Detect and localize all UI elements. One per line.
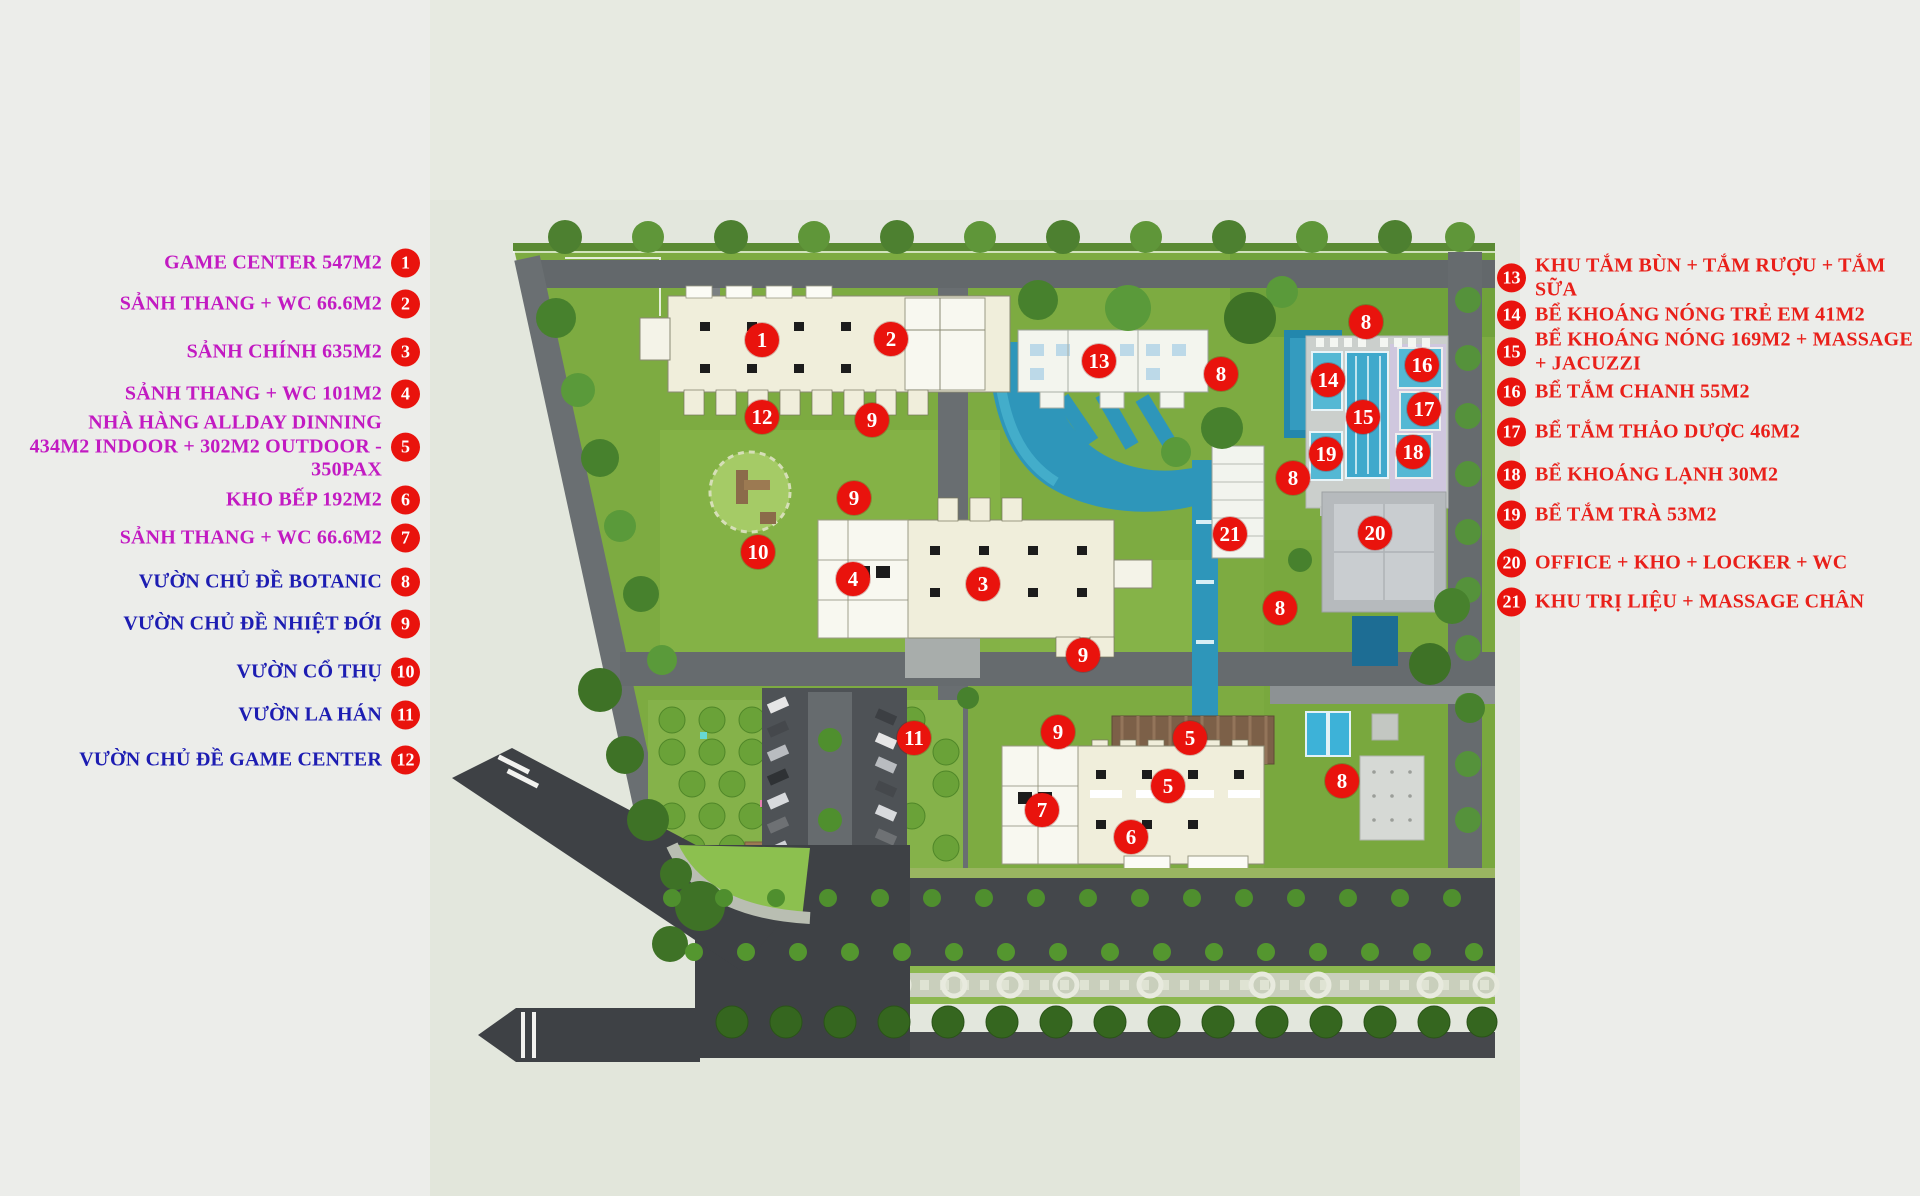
legend-label: VƯỜN CHỦ ĐỀ BOTANIC <box>139 570 382 594</box>
legend-number-badge: 16 <box>1497 378 1526 407</box>
map-marker-3: 3 <box>966 567 1000 601</box>
legend-number-badge: 14 <box>1497 301 1526 330</box>
map-marker-5: 5 <box>1173 721 1207 755</box>
legend-item-15: 15BỂ KHOÁNG NÓNG 169M2 + MASSAGE + JACUZ… <box>1497 328 1920 375</box>
map-marker-9: 9 <box>1066 638 1100 672</box>
legend-label: KHO BẾP 192M2 <box>226 488 382 512</box>
legend-item-20: 20OFFICE + KHO + LOCKER + WC <box>1497 549 1847 578</box>
legend-number-badge: 3 <box>391 338 420 367</box>
legend-item-13: 13KHU TẮM BÙN + TẮM RƯỢU + TẮM SỮA <box>1497 254 1920 301</box>
map-marker-6: 6 <box>1114 820 1148 854</box>
playground-garden-10 <box>710 452 790 532</box>
legend-item-18: 18BỂ KHOÁNG LẠNH 30M2 <box>1497 461 1778 490</box>
map-marker-20: 20 <box>1358 516 1392 550</box>
legend-number-badge: 11 <box>391 701 420 730</box>
map-marker-9: 9 <box>1041 715 1075 749</box>
map-marker-2: 2 <box>874 322 908 356</box>
legend-item-6: KHO BẾP 192M26 <box>226 486 420 515</box>
legend-label: VƯỜN CHỦ ĐỀ GAME CENTER <box>79 748 382 772</box>
map-marker-8: 8 <box>1204 357 1238 391</box>
legend-label: KHU TRỊ LIỆU + MASSAGE CHÂN <box>1535 590 1864 614</box>
legend-item-12: VƯỜN CHỦ ĐỀ GAME CENTER12 <box>79 746 420 775</box>
legend-label: BỂ TẮM TRÀ 53M2 <box>1535 503 1717 527</box>
map-marker-8: 8 <box>1263 591 1297 625</box>
legend-item-8: VƯỜN CHỦ ĐỀ BOTANIC8 <box>139 568 420 597</box>
legend-label: NHÀ HÀNG ALLDAY DINNING 434M2 INDOOR + 3… <box>0 412 382 483</box>
map-marker-8: 8 <box>1325 764 1359 798</box>
legend-item-5: NHÀ HÀNG ALLDAY DINNING 434M2 INDOOR + 3… <box>0 412 420 483</box>
legend-item-10: VƯỜN CỔ THỤ10 <box>236 658 420 687</box>
legend-number-badge: 15 <box>1497 338 1526 367</box>
legend-label: BỂ TẮM THẢO DƯỢC 46M2 <box>1535 420 1800 444</box>
legend-number-badge: 7 <box>391 524 420 553</box>
legend-label: VƯỜN LA HÁN <box>238 703 382 727</box>
map-marker-7: 7 <box>1025 793 1059 827</box>
legend-label: GAME CENTER 547M2 <box>164 251 382 275</box>
map-marker-5: 5 <box>1151 769 1185 803</box>
legend-item-11: VƯỜN LA HÁN11 <box>238 701 420 730</box>
map-marker-12: 12 <box>745 400 779 434</box>
legend-number-badge: 1 <box>391 249 420 278</box>
legend-number-badge: 19 <box>1497 501 1526 530</box>
map-marker-18: 18 <box>1396 435 1430 469</box>
map-marker-9: 9 <box>855 403 889 437</box>
legend-label: BỂ KHOÁNG NÓNG TRẺ EM 41M2 <box>1535 303 1865 327</box>
legend-number-badge: 5 <box>391 433 420 462</box>
site-plan-page: GAME CENTER 547M21 SẢNH THANG + WC 66.6M… <box>0 0 1920 1196</box>
legend-number-badge: 9 <box>391 610 420 639</box>
map-marker-16: 16 <box>1405 348 1439 382</box>
map-marker-17: 17 <box>1407 392 1441 426</box>
legend-item-16: 16BỂ TẮM CHANH 55M2 <box>1497 378 1750 407</box>
map-marker-13: 13 <box>1082 344 1116 378</box>
map-marker-8: 8 <box>1276 461 1310 495</box>
legend-label: VƯỜN CỔ THỤ <box>236 660 382 684</box>
legend-number-badge: 17 <box>1497 418 1526 447</box>
map-marker-9: 9 <box>837 481 871 515</box>
legend-item-7: SẢNH THANG + WC 66.6M27 <box>120 524 420 553</box>
map-marker-11: 11 <box>897 721 931 755</box>
map-marker-1: 1 <box>745 323 779 357</box>
legend-label: BỂ KHOÁNG NÓNG 169M2 + MASSAGE + JACUZZI <box>1535 328 1920 375</box>
legend-label: SẢNH CHÍNH 635M2 <box>187 340 382 364</box>
legend-number-badge: 13 <box>1497 264 1526 293</box>
legend-item-21: 21KHU TRỊ LIỆU + MASSAGE CHÂN <box>1497 588 1864 617</box>
legend-label: VƯỜN CHỦ ĐỀ NHIỆT ĐỚI <box>123 612 382 636</box>
legend-number-badge: 21 <box>1497 588 1526 617</box>
map-marker-15: 15 <box>1346 400 1380 434</box>
legend-label: OFFICE + KHO + LOCKER + WC <box>1535 551 1847 575</box>
map-marker-10: 10 <box>741 535 775 569</box>
legend-label: BỂ KHOÁNG LẠNH 30M2 <box>1535 463 1778 487</box>
legend-item-19: 19BỂ TẮM TRÀ 53M2 <box>1497 501 1717 530</box>
building-20 <box>1322 492 1446 612</box>
map-marker-14: 14 <box>1311 363 1345 397</box>
legend-number-badge: 20 <box>1497 549 1526 578</box>
legend-number-badge: 8 <box>391 568 420 597</box>
legend-item-3: SẢNH CHÍNH 635M23 <box>187 338 420 367</box>
legend-item-9: VƯỜN CHỦ ĐỀ NHIỆT ĐỚI9 <box>123 610 420 639</box>
legend-label: SẢNH THANG + WC 66.6M2 <box>120 292 382 316</box>
legend-number-badge: 6 <box>391 486 420 515</box>
legend-number-badge: 4 <box>391 380 420 409</box>
map-marker-4: 4 <box>836 562 870 596</box>
legend-number-badge: 10 <box>391 658 420 687</box>
legend-item-4: SẢNH THANG + WC 101M24 <box>125 380 420 409</box>
legend-item-1: GAME CENTER 547M21 <box>164 249 420 278</box>
map-marker-8: 8 <box>1349 305 1383 339</box>
legend-label: BỂ TẮM CHANH 55M2 <box>1535 380 1750 404</box>
legend-number-badge: 12 <box>391 746 420 775</box>
legend-label: KHU TẮM BÙN + TẮM RƯỢU + TẮM SỮA <box>1535 254 1920 301</box>
legend-item-14: 14BỂ KHOÁNG NÓNG TRẺ EM 41M2 <box>1497 301 1865 330</box>
map-marker-21: 21 <box>1213 517 1247 551</box>
legend-item-2: SẢNH THANG + WC 66.6M22 <box>120 290 420 319</box>
map-marker-19: 19 <box>1309 437 1343 471</box>
legend-label: SẢNH THANG + WC 66.6M2 <box>120 526 382 550</box>
legend-number-badge: 18 <box>1497 461 1526 490</box>
legend-item-17: 17BỂ TẮM THẢO DƯỢC 46M2 <box>1497 418 1800 447</box>
legend-label: SẢNH THANG + WC 101M2 <box>125 382 382 406</box>
legend-number-badge: 2 <box>391 290 420 319</box>
